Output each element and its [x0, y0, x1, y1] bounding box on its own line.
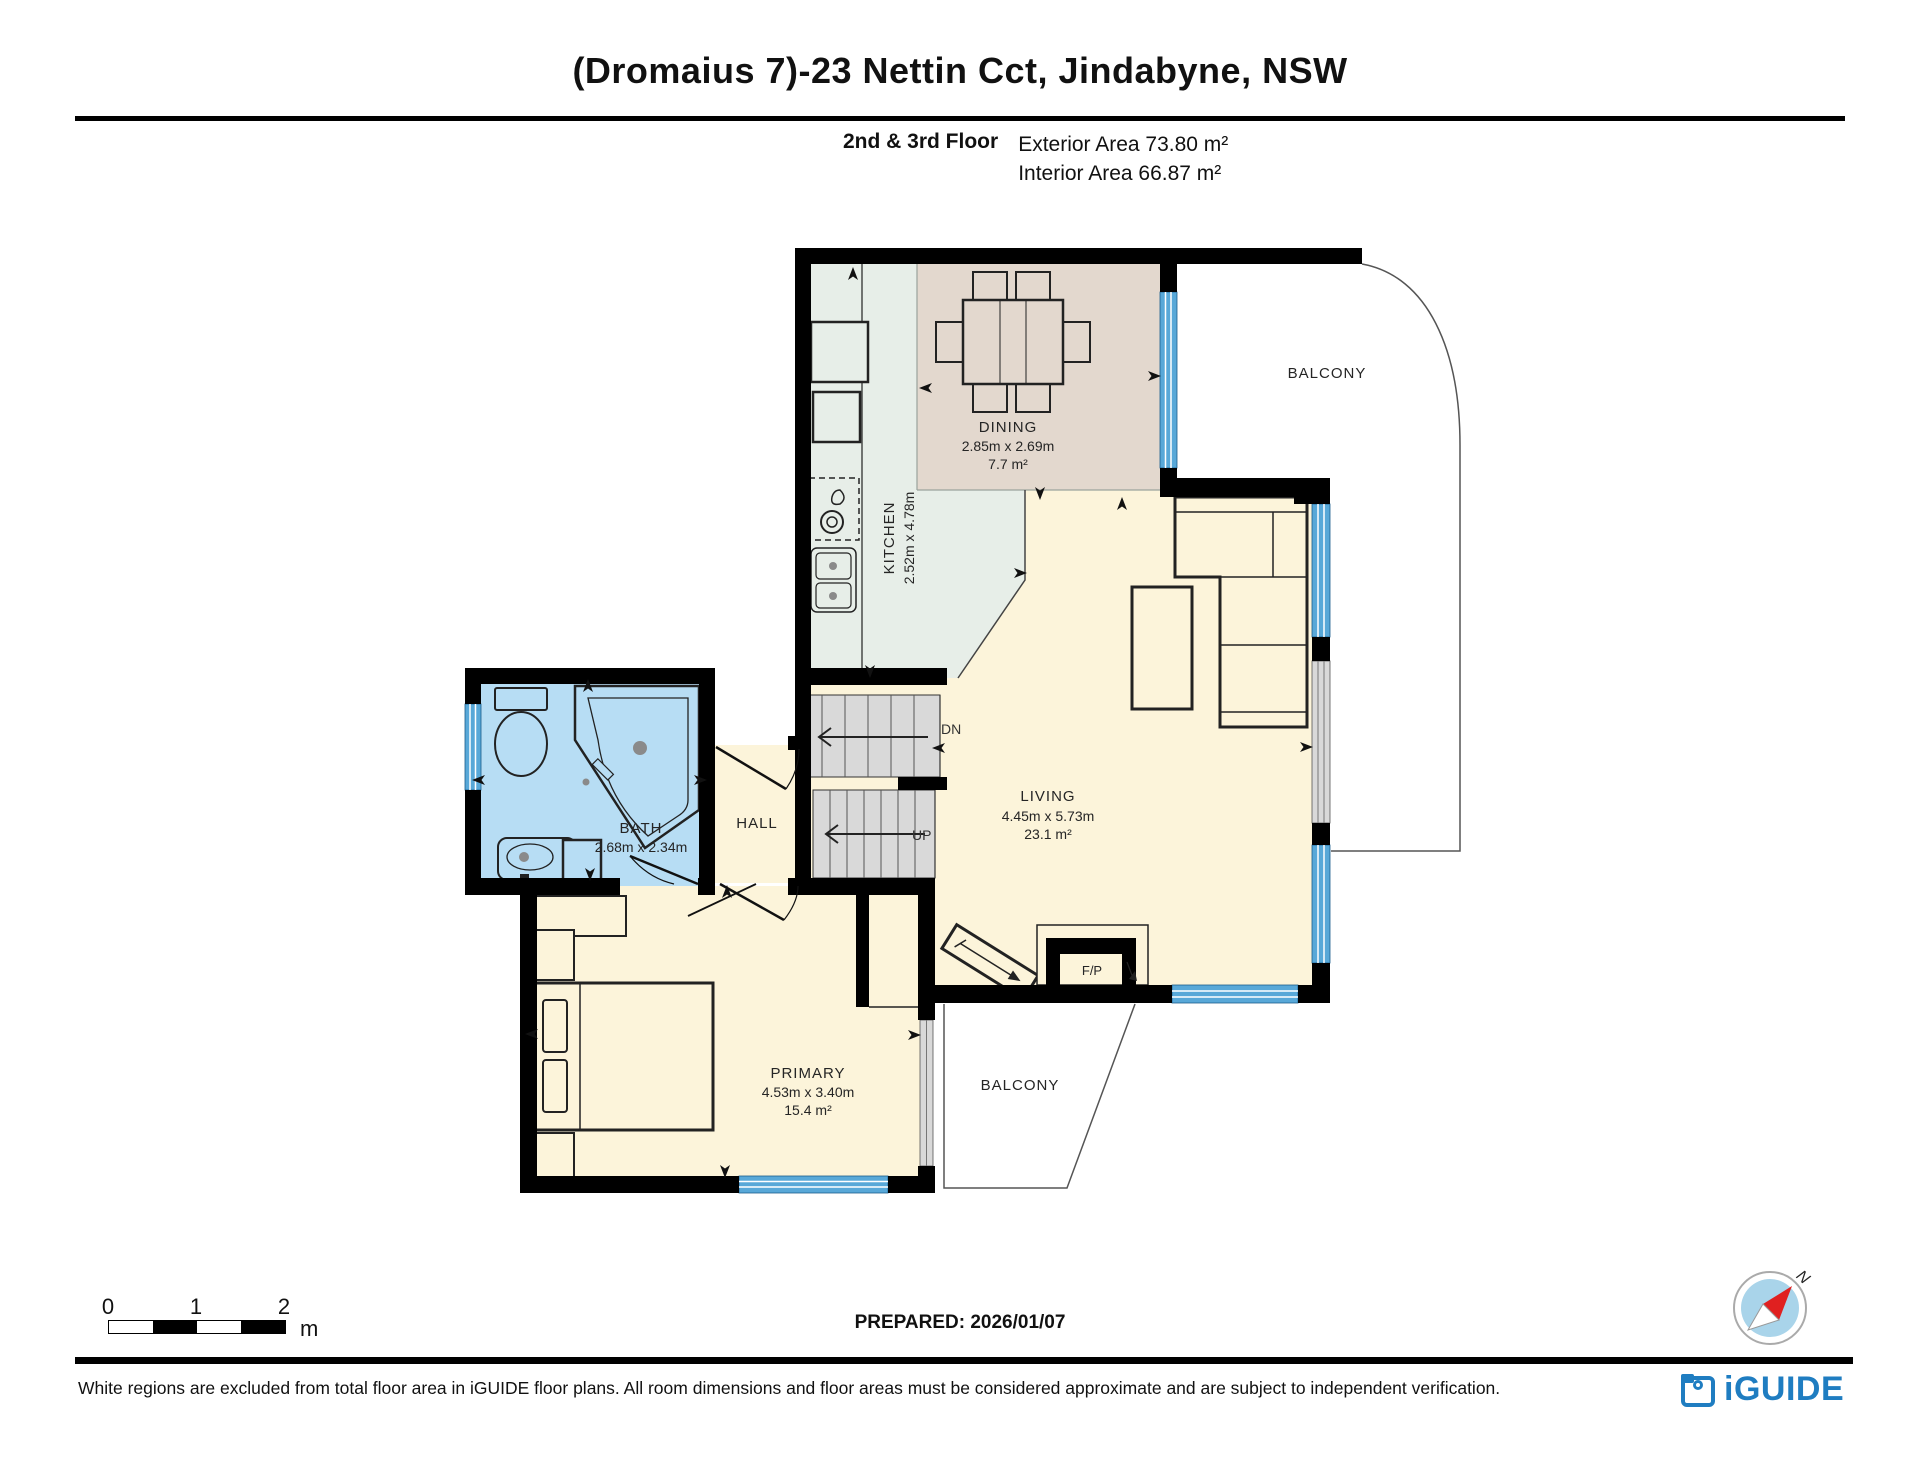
prepared-date: PREPARED: 2026/01/07 [0, 1312, 1920, 1334]
stairs-up-label: UP [912, 827, 931, 843]
title-divider [75, 116, 1845, 121]
svg-text:2.68m x 2.34m: 2.68m x 2.34m [595, 839, 688, 855]
window [1172, 985, 1298, 1003]
chair [973, 384, 1007, 412]
fridge [811, 322, 868, 382]
svg-text:KITCHEN: KITCHEN [881, 502, 898, 575]
iguide-camera-icon [1680, 1371, 1718, 1409]
exterior-area: Exterior Area 73.80 m² [1018, 130, 1228, 159]
svg-text:23.1 m²: 23.1 m² [1024, 826, 1072, 842]
nightstand [532, 1133, 574, 1180]
svg-text:BATH: BATH [620, 820, 663, 837]
brand-logo: iGUIDE [1680, 1370, 1844, 1409]
stairs-down-label: DN [941, 721, 961, 737]
svg-text:PRIMARY: PRIMARY [770, 1065, 845, 1082]
floor-plan-page: (Dromaius 7)-23 Nettin Cct, Jindabyne, N… [0, 0, 1920, 1484]
hall-label: HALL [736, 815, 778, 832]
pillow [543, 1000, 567, 1052]
svg-text:7.7 m²: 7.7 m² [988, 456, 1028, 472]
coffee-table [1132, 587, 1192, 709]
svg-text:4.45m x 5.73m: 4.45m x 5.73m [1002, 808, 1095, 824]
chair [936, 322, 964, 362]
window [465, 704, 481, 790]
interior-area: Interior Area 66.87 m² [1018, 159, 1228, 188]
lower-balcony-label: BALCONY [981, 1077, 1060, 1094]
compass: N [1728, 1260, 1818, 1352]
upper-balcony-label: BALCONY [1288, 365, 1367, 382]
sliding-door [1312, 661, 1330, 823]
sliding-door [920, 1020, 933, 1166]
chair [1016, 384, 1050, 412]
lower-balcony-outline [944, 1004, 1135, 1188]
dining-table [963, 300, 1063, 384]
nightstand [532, 930, 574, 980]
chair [1062, 322, 1090, 362]
svg-text:2.52m x 4.78m: 2.52m x 4.78m [901, 492, 917, 585]
upper-balcony-outline [1331, 264, 1460, 851]
hall-floor [715, 745, 795, 883]
footer-divider [75, 1357, 1853, 1364]
floor-info: 2nd & 3rd Floor Exterior Area 73.80 m² I… [843, 130, 1228, 188]
fireplace: F/P [1037, 925, 1148, 985]
fireplace-label: F/P [1082, 963, 1102, 978]
toilet [495, 688, 547, 776]
floor-plan: F/P [380, 195, 1505, 1235]
chair [1016, 272, 1050, 300]
window [739, 1176, 888, 1193]
window [1160, 292, 1177, 468]
window [1312, 845, 1330, 963]
oven [813, 392, 860, 442]
window [1312, 504, 1330, 637]
disclaimer-text: White regions are excluded from total fl… [78, 1378, 1500, 1399]
brand-wordmark: iGUIDE [1724, 1370, 1844, 1409]
cooktop [809, 478, 859, 540]
svg-text:15.4 m²: 15.4 m² [784, 1102, 832, 1118]
svg-text:2.85m x 2.69m: 2.85m x 2.69m [962, 438, 1055, 454]
chair [973, 272, 1007, 300]
svg-text:DINING: DINING [979, 419, 1038, 436]
page-title: (Dromaius 7)-23 Nettin Cct, Jindabyne, N… [0, 50, 1920, 92]
svg-text:4.53m x 3.40m: 4.53m x 3.40m [762, 1084, 855, 1100]
staircase-down [800, 695, 940, 777]
pillow [543, 1060, 567, 1112]
svg-text:LIVING: LIVING [1020, 788, 1075, 805]
floor-label: 2nd & 3rd Floor [843, 130, 998, 188]
